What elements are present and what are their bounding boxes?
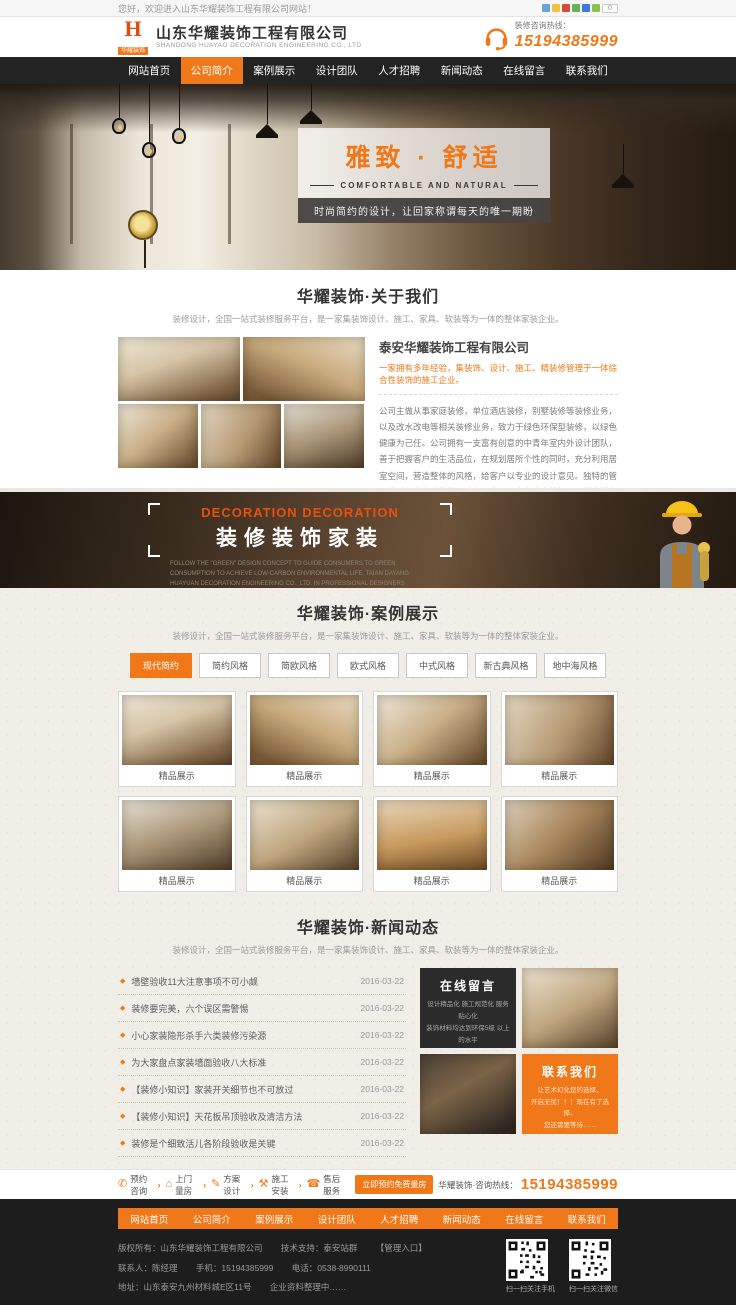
- hotline-number: 15194385999: [515, 32, 618, 53]
- news-item[interactable]: ◆装修是个细致活儿各阶段验收是关键2016-03-22: [118, 1130, 406, 1157]
- bracket-icon: [440, 545, 452, 557]
- worker-illustration: [646, 496, 718, 588]
- banner2-title: 装修装饰家装: [170, 522, 430, 552]
- nav-item-cases[interactable]: 案例展示: [243, 57, 306, 84]
- news-photo[interactable]: [522, 968, 618, 1048]
- news-item[interactable]: ◆为大家盘点家装墙面验收八大标准2016-03-22: [118, 1049, 406, 1076]
- chevron-right-icon: ›: [299, 1180, 302, 1190]
- step-booking[interactable]: ✆预约咨询: [118, 1173, 153, 1197]
- contact-box-title: 联系我们: [528, 1063, 612, 1080]
- news-subtitle: 装修设计，全国一站式装修服务平台，是一家集装饰设计、施工、家具、软装等为一体的整…: [118, 944, 618, 956]
- window-frame: [228, 124, 231, 244]
- service-steps-bar: ✆预约咨询 › ⌂上门量房 › ✎方案设计 › ⚒施工安装 › ☎售后服务 立即…: [0, 1169, 736, 1199]
- case-card[interactable]: 精品展示: [118, 691, 236, 787]
- footer-nav-contact[interactable]: 联系我们: [556, 1208, 619, 1229]
- cases-title: 华耀装饰·案例展示: [118, 600, 618, 624]
- footer-note: 企业资料整理中……: [270, 1282, 347, 1292]
- main-nav: 网站首页 公司简介 案例展示 设计团队 人才招聘 新闻动态 在线留言 联系我们: [0, 57, 736, 84]
- online-message-box[interactable]: 在线留言 设计精品化 施工规范化 服务贴心化 装饰材料均达到环保5级 以上的水平: [420, 968, 516, 1048]
- cage-lamp-icon: [142, 84, 156, 158]
- news-item[interactable]: ◆【装修小知识】家装开关细节也不可放过2016-03-22: [118, 1076, 406, 1103]
- cage-lamp-icon: [112, 84, 126, 134]
- footer-nav-message[interactable]: 在线留言: [493, 1208, 556, 1229]
- bracket-icon: [440, 503, 452, 515]
- case-card[interactable]: 精品展示: [373, 796, 491, 892]
- company-address: 地址：山东泰安九州材料城E区11号: [118, 1282, 252, 1292]
- book-measure-button[interactable]: 立即预约免费量房: [355, 1175, 433, 1194]
- hero-overlay: 雅致 · 舒适 COMFORTABLE AND NATURAL 时尚简约的设计，…: [298, 128, 550, 223]
- case-photo: [377, 800, 487, 870]
- tab-mediterranean[interactable]: 地中海风格: [544, 653, 606, 678]
- company-name: 山东华耀装饰工程有限公司: [156, 25, 361, 42]
- footer-hotline-number: 15194385999: [521, 1176, 618, 1193]
- case-gallery: 精品展示 精品展示 精品展示 精品展示 精品展示 精品展示 精品展示 精品展示: [118, 691, 618, 892]
- banner2-title-en: DECORATION DECORATION: [170, 505, 430, 520]
- nav-item-news[interactable]: 新闻动态: [431, 57, 494, 84]
- decoration-banner: DECORATION DECORATION 装修装饰家装 FOLLOW THE …: [0, 492, 736, 588]
- logo-h-icon: H: [118, 18, 148, 40]
- footer-nav-news[interactable]: 新闻动态: [431, 1208, 494, 1229]
- wall-lamp-icon: [612, 144, 634, 188]
- about-photo[interactable]: [284, 404, 364, 468]
- hero-subtitle-en: COMFORTABLE AND NATURAL: [310, 181, 538, 190]
- bracket-icon: [148, 545, 160, 557]
- news-item[interactable]: ◆装修要完美，六个误区需警惕2016-03-22: [118, 995, 406, 1022]
- cases-subtitle: 装修设计，全国一站式装修服务平台，是一家集装饰设计、施工、家具、软装等为一体的整…: [118, 630, 618, 642]
- share-baidu-icon[interactable]: [582, 4, 590, 12]
- case-photo: [377, 695, 487, 765]
- case-photo: [122, 800, 232, 870]
- qr-wechat: 扫一扫关注微信: [569, 1239, 618, 1298]
- news-photo[interactable]: [420, 1054, 516, 1134]
- news-list: ◆墙壁验收11大注意事项不可小觑2016-03-22 ◆装修要完美，六个误区需警…: [118, 968, 406, 1157]
- about-photo-collage: [118, 337, 366, 488]
- news-section: 华耀装饰·新闻动态 装修设计，全国一站式装修服务平台，是一家集装饰设计、施工、家…: [0, 904, 736, 1169]
- about-photo[interactable]: [201, 404, 281, 468]
- bullet-icon: ◆: [120, 1112, 125, 1120]
- about-company-title: 泰安华耀装饰工程有限公司: [379, 337, 618, 356]
- pendant-lamp-icon: [256, 84, 278, 138]
- case-caption: 精品展示: [377, 870, 487, 888]
- company-name-en: SHANDONG HUAYAO DECORATION ENGINEERING C…: [156, 42, 361, 49]
- mobile-number: 手机：15194385999: [196, 1263, 274, 1273]
- footer-nav-jobs[interactable]: 人才招聘: [368, 1208, 431, 1229]
- logo-name: 华耀装饰: [118, 47, 148, 55]
- site-footer: 网站首页 公司简介 案例展示 设计团队 人才招聘 新闻动态 在线留言 联系我们 …: [0, 1199, 736, 1305]
- contact-box[interactable]: 联系我们 让艺术幻化您的选择， 开启无忧！！！现在有了选择， 您还需要等待……: [522, 1054, 618, 1134]
- pendant-lamp-icon: [300, 84, 322, 124]
- case-caption: 精品展示: [122, 870, 232, 888]
- case-caption: 精品展示: [122, 765, 232, 783]
- qr-wechat-caption: 扫一扫关注微信: [569, 1284, 618, 1294]
- share-widget: 0: [542, 4, 618, 13]
- tab-minimal[interactable]: 简约风格: [199, 653, 261, 678]
- footer-nav-home[interactable]: 网站首页: [118, 1208, 181, 1229]
- share-more-icon[interactable]: [592, 4, 600, 12]
- company-logo[interactable]: H 华耀装饰: [118, 18, 148, 56]
- case-caption: 精品展示: [377, 765, 487, 783]
- case-card[interactable]: 精品展示: [246, 796, 364, 892]
- tab-nordic[interactable]: 简欧风格: [268, 653, 330, 678]
- case-caption: 精品展示: [250, 870, 360, 888]
- case-card[interactable]: 精品展示: [501, 691, 619, 787]
- case-photo: [505, 800, 615, 870]
- admin-entry-link[interactable]: 【管理入口】: [376, 1243, 427, 1253]
- bullet-icon: ◆: [120, 1004, 125, 1012]
- about-title: 华耀装饰·关于我们: [118, 283, 618, 307]
- about-paragraph: 公司主做从事家庭装修，单位酒店装修，别墅装修等装修业务，以及改水改电等相关装修业…: [379, 403, 618, 488]
- hero-banner: 雅致 · 舒适 COMFORTABLE AND NATURAL 时尚简约的设计，…: [0, 84, 736, 270]
- step-construction[interactable]: ⚒施工安装: [259, 1173, 294, 1197]
- share-wechat-icon[interactable]: [572, 4, 580, 12]
- tech-support-text: 技术支持：泰安站群: [281, 1243, 358, 1253]
- news-item[interactable]: ◆小心家装隐形杀手六类装修污染源2016-03-22: [118, 1022, 406, 1049]
- bullet-icon: ◆: [120, 1139, 125, 1147]
- case-card[interactable]: 精品展示: [246, 691, 364, 787]
- header-hotline: 装修咨询热线： 15194385999: [483, 21, 618, 52]
- about-photo[interactable]: [243, 337, 365, 401]
- hero-tagline: 时尚简约的设计，让回家称谓每天的唯一期盼: [298, 198, 550, 223]
- qr-code-icon: [506, 1239, 548, 1281]
- nav-item-message[interactable]: 在线留言: [493, 57, 556, 84]
- site-header: H 华耀装饰 山东华耀装饰工程有限公司 SHANDONG HUAYAO DECO…: [0, 17, 736, 57]
- copyright-text: 版权所有：山东华耀装饰工程有限公司: [118, 1243, 263, 1253]
- footer-nav: 网站首页 公司简介 案例展示 设计团队 人才招聘 新闻动态 在线留言 联系我们: [118, 1208, 618, 1229]
- case-photo: [505, 695, 615, 765]
- hotline-label: 装修咨询热线：: [515, 21, 618, 31]
- news-item[interactable]: ◆【装修小知识】天花板吊顶验收及清洁方法2016-03-22: [118, 1103, 406, 1130]
- case-card[interactable]: 精品展示: [501, 796, 619, 892]
- step-measure[interactable]: ⌂上门量房: [166, 1173, 199, 1197]
- share-qzone-icon[interactable]: [552, 4, 560, 12]
- nav-item-about[interactable]: 公司简介: [181, 57, 244, 84]
- share-weibo-icon[interactable]: [562, 4, 570, 12]
- tab-neoclassic[interactable]: 新古典风格: [475, 653, 537, 678]
- bullet-icon: ◆: [120, 1031, 125, 1039]
- footer-nav-about[interactable]: 公司简介: [181, 1208, 244, 1229]
- case-photo: [250, 800, 360, 870]
- nav-item-team[interactable]: 设计团队: [306, 57, 369, 84]
- bullet-icon: ◆: [120, 977, 125, 985]
- about-highlight: 一家拥有多年经验，集装饰、设计、施工、精装修管理于一体综合性装饰的施工企业。: [379, 362, 618, 386]
- chevron-right-icon: ›: [203, 1180, 206, 1190]
- tab-european[interactable]: 欧式风格: [337, 653, 399, 678]
- headset-icon: ☎: [307, 1179, 321, 1190]
- share-count: 0: [602, 4, 618, 13]
- footer-nav-cases[interactable]: 案例展示: [243, 1208, 306, 1229]
- footer-nav-team[interactable]: 设计团队: [306, 1208, 369, 1229]
- case-caption: 精品展示: [250, 765, 360, 783]
- cases-section: 华耀装饰·案例展示 装修设计，全国一站式装修服务平台，是一家集装饰设计、施工、家…: [0, 588, 736, 904]
- tab-modern-minimal[interactable]: 现代简约: [130, 653, 192, 678]
- nav-item-contact[interactable]: 联系我们: [556, 57, 619, 84]
- welcome-text: 您好，欢迎进入山东华耀装饰工程有限公司网站！: [118, 2, 316, 15]
- bullet-icon: ◆: [120, 1058, 125, 1066]
- case-filter-tabs: 现代简约 简约风格 简欧风格 欧式风格 中式风格 新古典风格 地中海风格: [118, 653, 618, 678]
- nav-item-jobs[interactable]: 人才招聘: [368, 57, 431, 84]
- case-photo: [250, 695, 360, 765]
- banner2-description: FOLLOW THE "GREEN" DESIGN CONCEPT TO GUI…: [170, 559, 430, 588]
- case-caption: 精品展示: [505, 765, 615, 783]
- floor-spotlight: [128, 210, 162, 270]
- message-box-title: 在线留言: [426, 977, 510, 994]
- qr-mobile-caption: 扫一扫关注手机: [506, 1284, 555, 1294]
- divider: [379, 394, 618, 395]
- headset-icon: [483, 24, 510, 51]
- about-subtitle: 装修设计，全国一站式装修服务平台，是一家集装饰设计、施工、家具、软装等为一体的整…: [118, 313, 618, 325]
- tab-chinese[interactable]: 中式风格: [406, 653, 468, 678]
- case-caption: 精品展示: [505, 870, 615, 888]
- qr-mobile: 扫一扫关注手机: [506, 1239, 555, 1298]
- telephone-number: 电话：0538-8990111: [292, 1263, 371, 1273]
- case-card[interactable]: 精品展示: [118, 796, 236, 892]
- topbar: 您好，欢迎进入山东华耀装饰工程有限公司网站！ 0: [0, 0, 736, 17]
- chevron-right-icon: ›: [251, 1180, 254, 1190]
- hammer-icon: ⚒: [259, 1179, 269, 1190]
- news-title: 华耀装饰·新闻动态: [118, 914, 618, 938]
- bracket-icon: [148, 503, 160, 515]
- about-photo[interactable]: [118, 404, 198, 468]
- contact-person: 联系人：陈经理: [118, 1263, 178, 1273]
- news-item[interactable]: ◆墙壁验收11大注意事项不可小觑2016-03-22: [118, 968, 406, 995]
- chevron-right-icon: ›: [158, 1180, 161, 1190]
- step-aftersale[interactable]: ☎售后服务: [307, 1173, 345, 1197]
- case-photo: [122, 695, 232, 765]
- hero-title: 雅致 · 舒适: [310, 138, 538, 174]
- window-frame: [70, 124, 73, 244]
- qr-code-icon: [569, 1239, 611, 1281]
- nav-item-home[interactable]: 网站首页: [118, 57, 181, 84]
- pencil-icon: ✎: [211, 1179, 220, 1190]
- about-photo[interactable]: [118, 337, 240, 401]
- phone-icon: ✆: [118, 1179, 127, 1190]
- case-card[interactable]: 精品展示: [373, 691, 491, 787]
- step-design[interactable]: ✎方案设计: [211, 1173, 246, 1197]
- cage-lamp-icon: [172, 84, 186, 144]
- about-section: 华耀装饰·关于我们 装修设计，全国一站式装修服务平台，是一家集装饰设计、施工、家…: [0, 270, 736, 488]
- house-icon: ⌂: [166, 1179, 173, 1190]
- footer-hotline-label: 华耀装饰·咨询热线：: [438, 1179, 517, 1191]
- bullet-icon: ◆: [120, 1085, 125, 1093]
- share-qq-icon[interactable]: [542, 4, 550, 12]
